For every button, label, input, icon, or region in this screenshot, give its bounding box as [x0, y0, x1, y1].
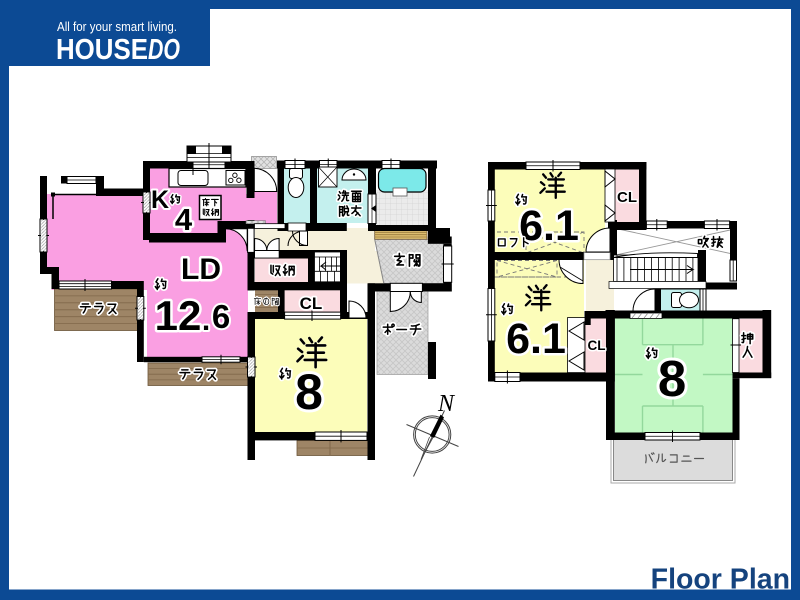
svg-text:.: . [202, 304, 210, 337]
svg-text:LD: LD [181, 253, 221, 286]
svg-text:CL: CL [588, 338, 606, 353]
svg-text:6.1: 6.1 [506, 315, 566, 363]
svg-text:8: 8 [295, 364, 323, 420]
svg-text:4: 4 [175, 202, 193, 237]
svg-text:CL: CL [300, 294, 323, 313]
svg-text:12: 12 [155, 292, 202, 339]
svg-text:N: N [437, 391, 456, 417]
svg-text:K: K [151, 186, 169, 214]
svg-text:6: 6 [212, 298, 230, 335]
svg-text:HOUSE: HOUSE [56, 34, 148, 66]
svg-text:CL: CL [617, 189, 637, 206]
svg-text:8: 8 [658, 350, 686, 407]
svg-text:Floor Plan: Floor Plan [651, 564, 790, 596]
svg-text:All for your smart living.: All for your smart living. [57, 20, 177, 34]
svg-text:DO: DO [148, 34, 180, 66]
